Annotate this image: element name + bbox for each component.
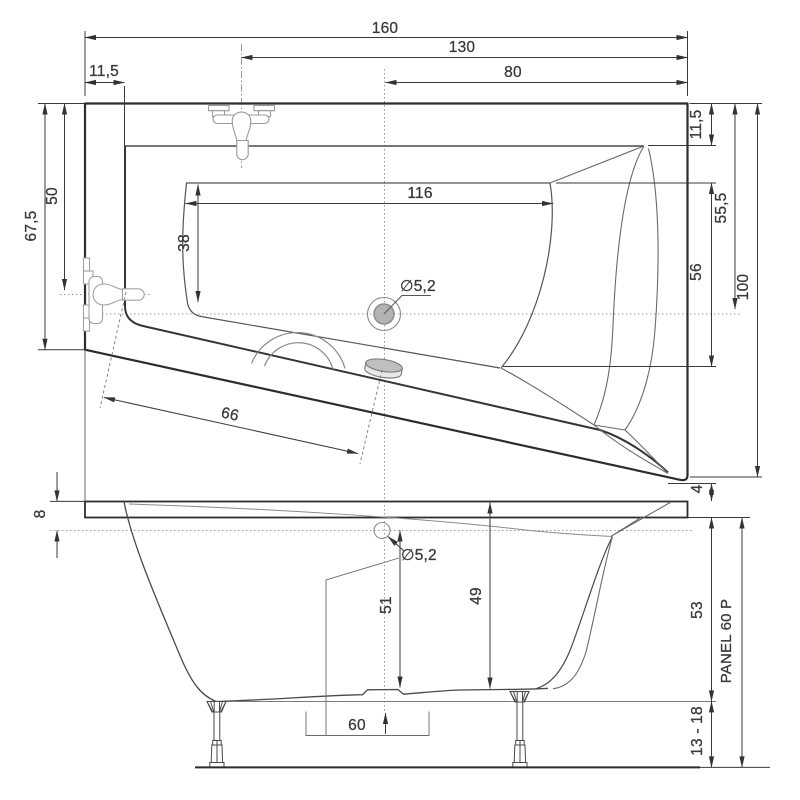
svg-text:130: 130 xyxy=(449,39,476,56)
svg-text:55,5: 55,5 xyxy=(713,193,730,224)
svg-text:11,5: 11,5 xyxy=(89,63,119,80)
svg-text:4: 4 xyxy=(689,484,706,493)
svg-text:116: 116 xyxy=(407,185,432,202)
svg-text:60: 60 xyxy=(348,717,366,734)
svg-text:160: 160 xyxy=(372,20,399,37)
svg-text:49: 49 xyxy=(468,587,485,605)
svg-text:50: 50 xyxy=(44,187,61,205)
svg-text:11,5: 11,5 xyxy=(688,110,705,140)
svg-text:13 - 18: 13 - 18 xyxy=(689,706,706,756)
svg-text:8: 8 xyxy=(32,510,49,519)
svg-text:80: 80 xyxy=(504,64,522,81)
svg-text:53: 53 xyxy=(689,601,706,619)
svg-text:100: 100 xyxy=(735,274,752,301)
svg-text:PANEL 60 P: PANEL 60 P xyxy=(718,599,735,684)
svg-text:∅5,2: ∅5,2 xyxy=(400,278,436,295)
svg-text:67,5: 67,5 xyxy=(23,211,40,242)
svg-text:38: 38 xyxy=(176,234,193,252)
svg-text:∅5,2: ∅5,2 xyxy=(401,547,437,564)
svg-text:56: 56 xyxy=(688,263,705,281)
svg-text:51: 51 xyxy=(378,596,395,614)
